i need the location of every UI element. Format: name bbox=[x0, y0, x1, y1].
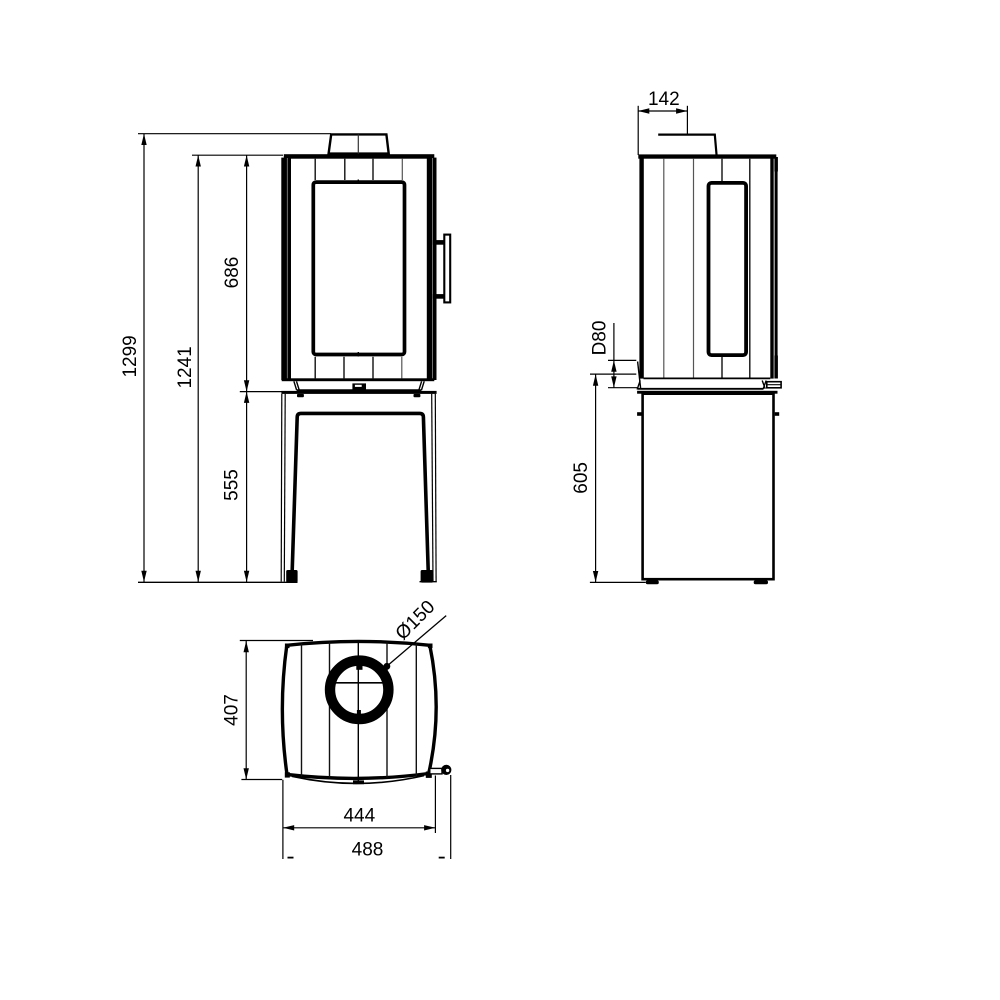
svg-text:444: 444 bbox=[343, 806, 375, 827]
svg-text:142: 142 bbox=[648, 89, 680, 110]
svg-text:D80: D80 bbox=[590, 321, 611, 356]
svg-text:488: 488 bbox=[352, 839, 384, 860]
svg-text:555: 555 bbox=[222, 469, 243, 501]
svg-text:407: 407 bbox=[222, 694, 243, 726]
svg-text:1299: 1299 bbox=[120, 335, 141, 377]
svg-text:605: 605 bbox=[571, 462, 592, 494]
svg-text:Ø150: Ø150 bbox=[392, 597, 440, 645]
svg-text:1241: 1241 bbox=[175, 346, 196, 388]
svg-text:686: 686 bbox=[222, 257, 243, 289]
